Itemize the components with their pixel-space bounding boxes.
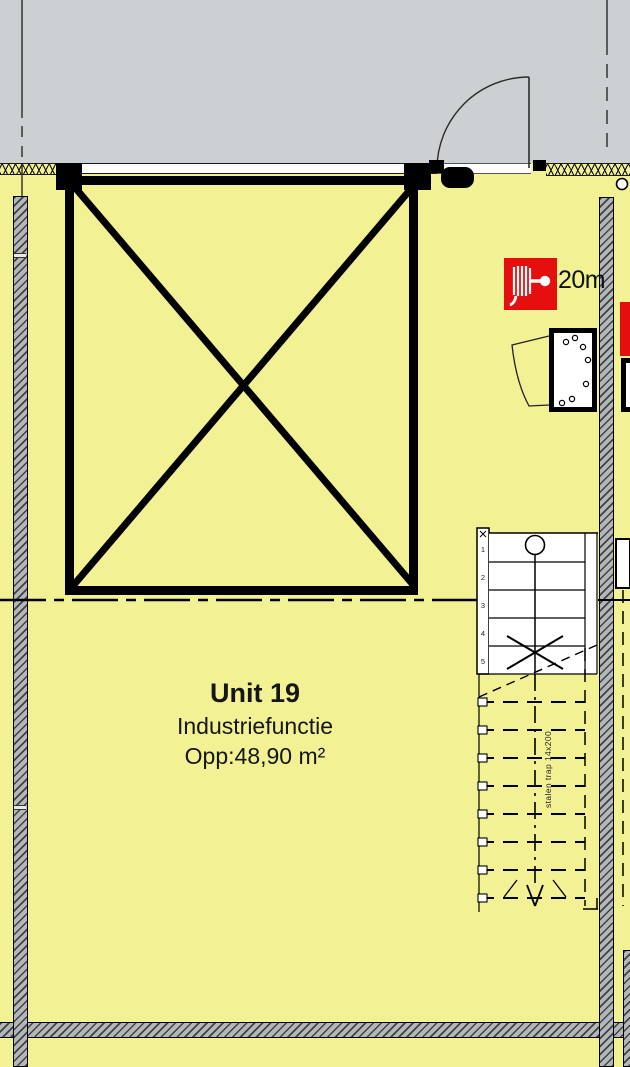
tread-number: 3	[478, 601, 488, 610]
stair-annotation: stalen trap 14x200	[543, 648, 555, 808]
door-stop-circle	[617, 179, 628, 190]
tread-number: 1	[478, 545, 488, 554]
floor-plan: 20m Unit 19 Industriefunctie Opp:48,90 m…	[0, 0, 630, 1067]
tread-number: 5	[478, 657, 488, 666]
door-closer	[441, 167, 474, 188]
tread-number: 4	[478, 629, 488, 638]
door-swing	[437, 77, 529, 169]
plan-linework	[0, 0, 630, 1067]
void-box	[56, 163, 431, 591]
tread-number: 2	[478, 573, 488, 582]
cabinet-door-swing	[512, 336, 549, 406]
stair-direction-arrow	[504, 674, 566, 906]
cabinet-symbols	[559, 335, 590, 405]
stair-adjacent-fragment	[616, 539, 630, 588]
newel-circle	[526, 536, 545, 555]
